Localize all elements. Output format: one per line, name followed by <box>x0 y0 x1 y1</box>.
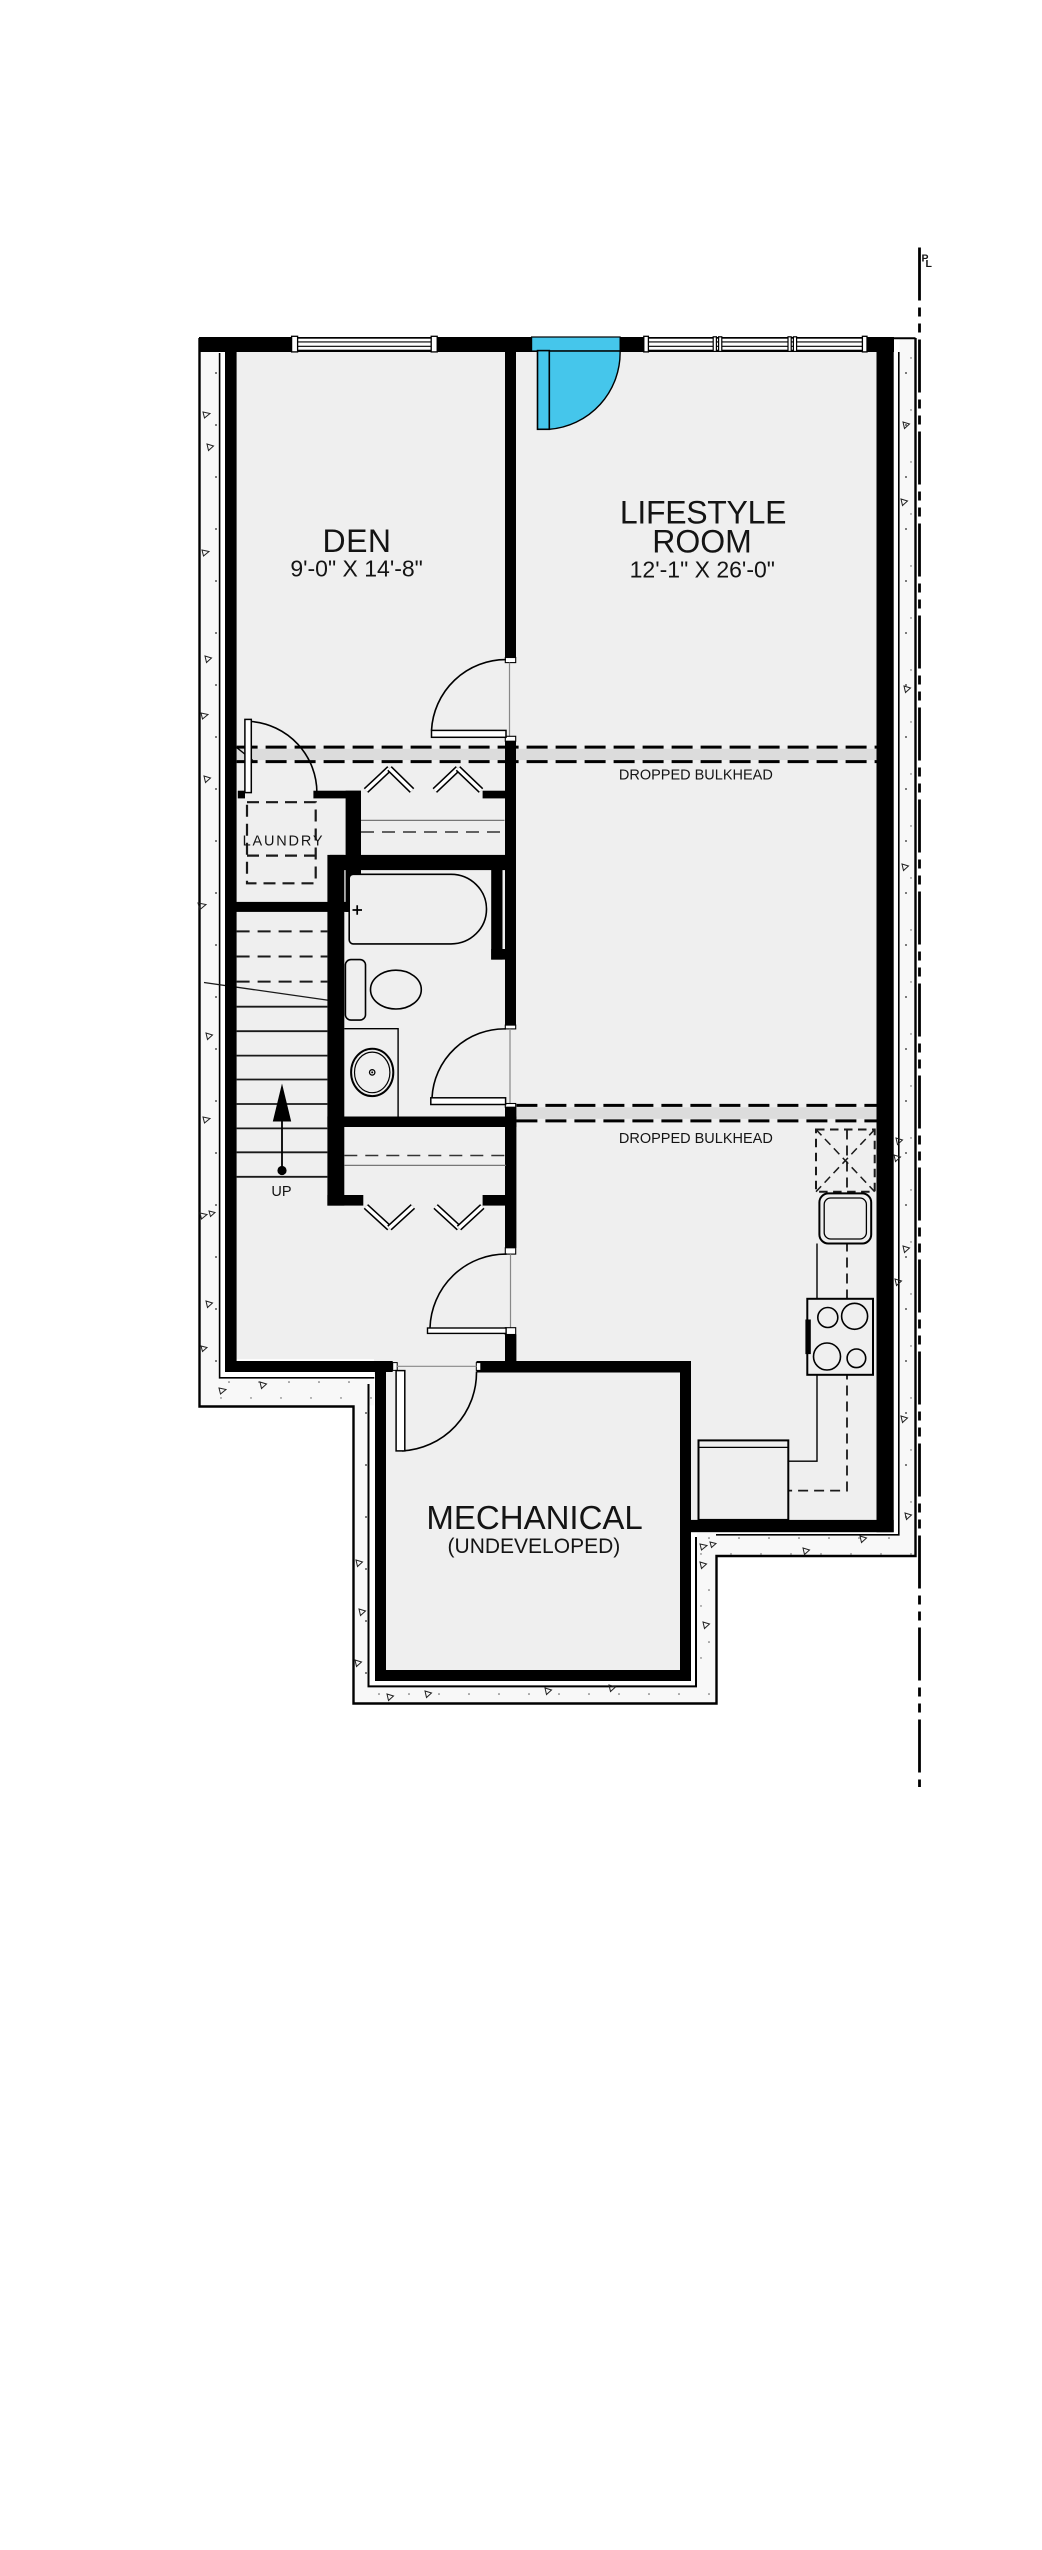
svg-text:DEN: DEN <box>322 523 391 559</box>
svg-text:9'-0" X 14'-8": 9'-0" X 14'-8" <box>290 555 423 581</box>
svg-text:L: L <box>926 258 933 270</box>
svg-text:LAUNDRY: LAUNDRY <box>243 833 325 849</box>
svg-text:ROOM: ROOM <box>652 523 752 559</box>
svg-text:(UNDEVELOPED): (UNDEVELOPED) <box>448 1535 621 1558</box>
svg-text:DROPPED BULKHEAD: DROPPED BULKHEAD <box>619 1131 773 1147</box>
svg-text:DROPPED BULKHEAD: DROPPED BULKHEAD <box>619 768 773 784</box>
svg-text:MECHANICAL: MECHANICAL <box>426 1499 642 1536</box>
svg-text:UP: UP <box>271 1184 291 1200</box>
svg-text:12'-1" X 26'-0": 12'-1" X 26'-0" <box>630 556 775 582</box>
